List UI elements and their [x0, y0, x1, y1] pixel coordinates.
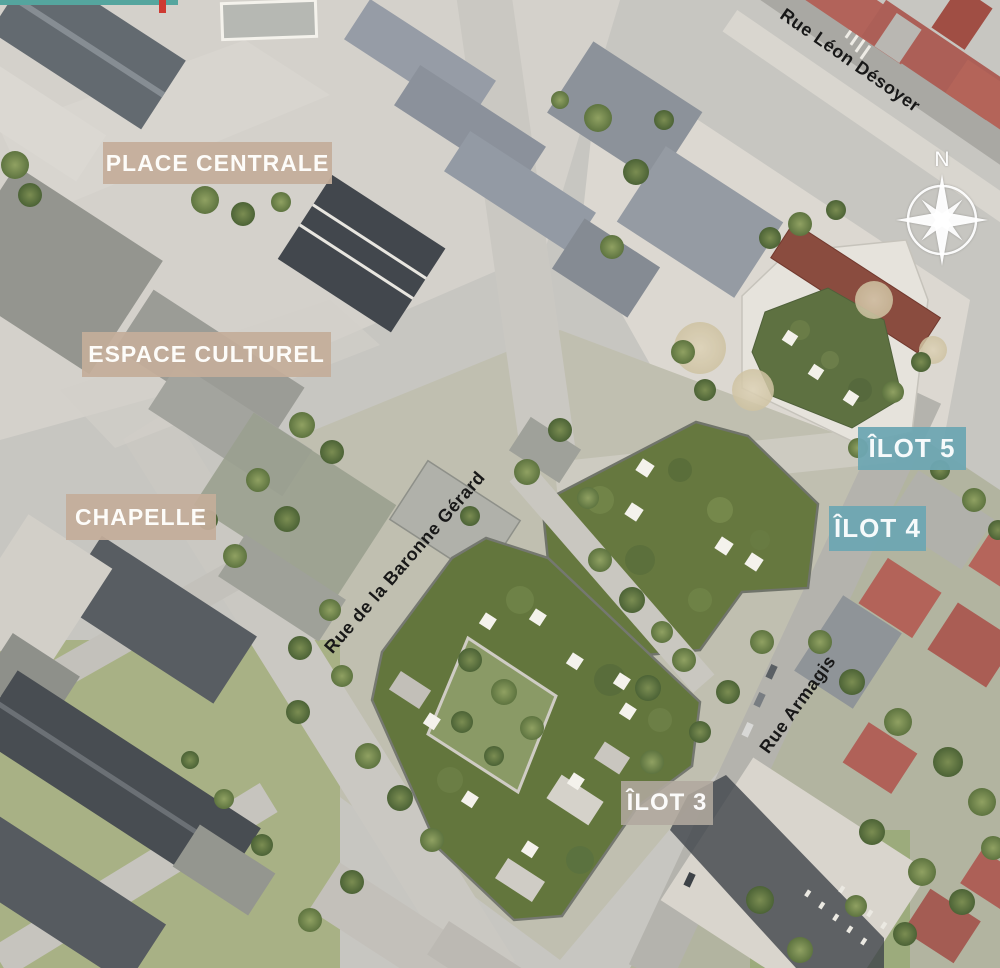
label-overlay: PLACE CENTRALE ESPACE CULTUREL CHAPELLE … — [0, 0, 1000, 968]
compass-rose-icon — [894, 172, 990, 268]
aerial-masterplan-map: PLACE CENTRALE ESPACE CULTUREL CHAPELLE … — [0, 0, 1000, 968]
compass-north-label: N — [934, 148, 949, 172]
block-label-ilot-3: ÎLOT 3 — [621, 781, 713, 825]
block-label-ilot-5: ÎLOT 5 — [858, 427, 966, 470]
block-label-ilot-4: ÎLOT 4 — [829, 506, 926, 551]
street-label-rue-de-la-baronne-gerard: Rue de la Baronne Gérard — [320, 467, 489, 657]
area-label-espace-culturel: ESPACE CULTUREL — [82, 332, 331, 377]
street-label-rue-armagis: Rue Armagis — [755, 651, 840, 757]
area-label-place-centrale: PLACE CENTRALE — [103, 142, 332, 184]
street-label-rue-leon-desoyer: Rue Léon Désoyer — [776, 4, 924, 116]
area-label-chapelle: CHAPELLE — [66, 494, 216, 540]
compass-rose: N — [890, 148, 994, 270]
